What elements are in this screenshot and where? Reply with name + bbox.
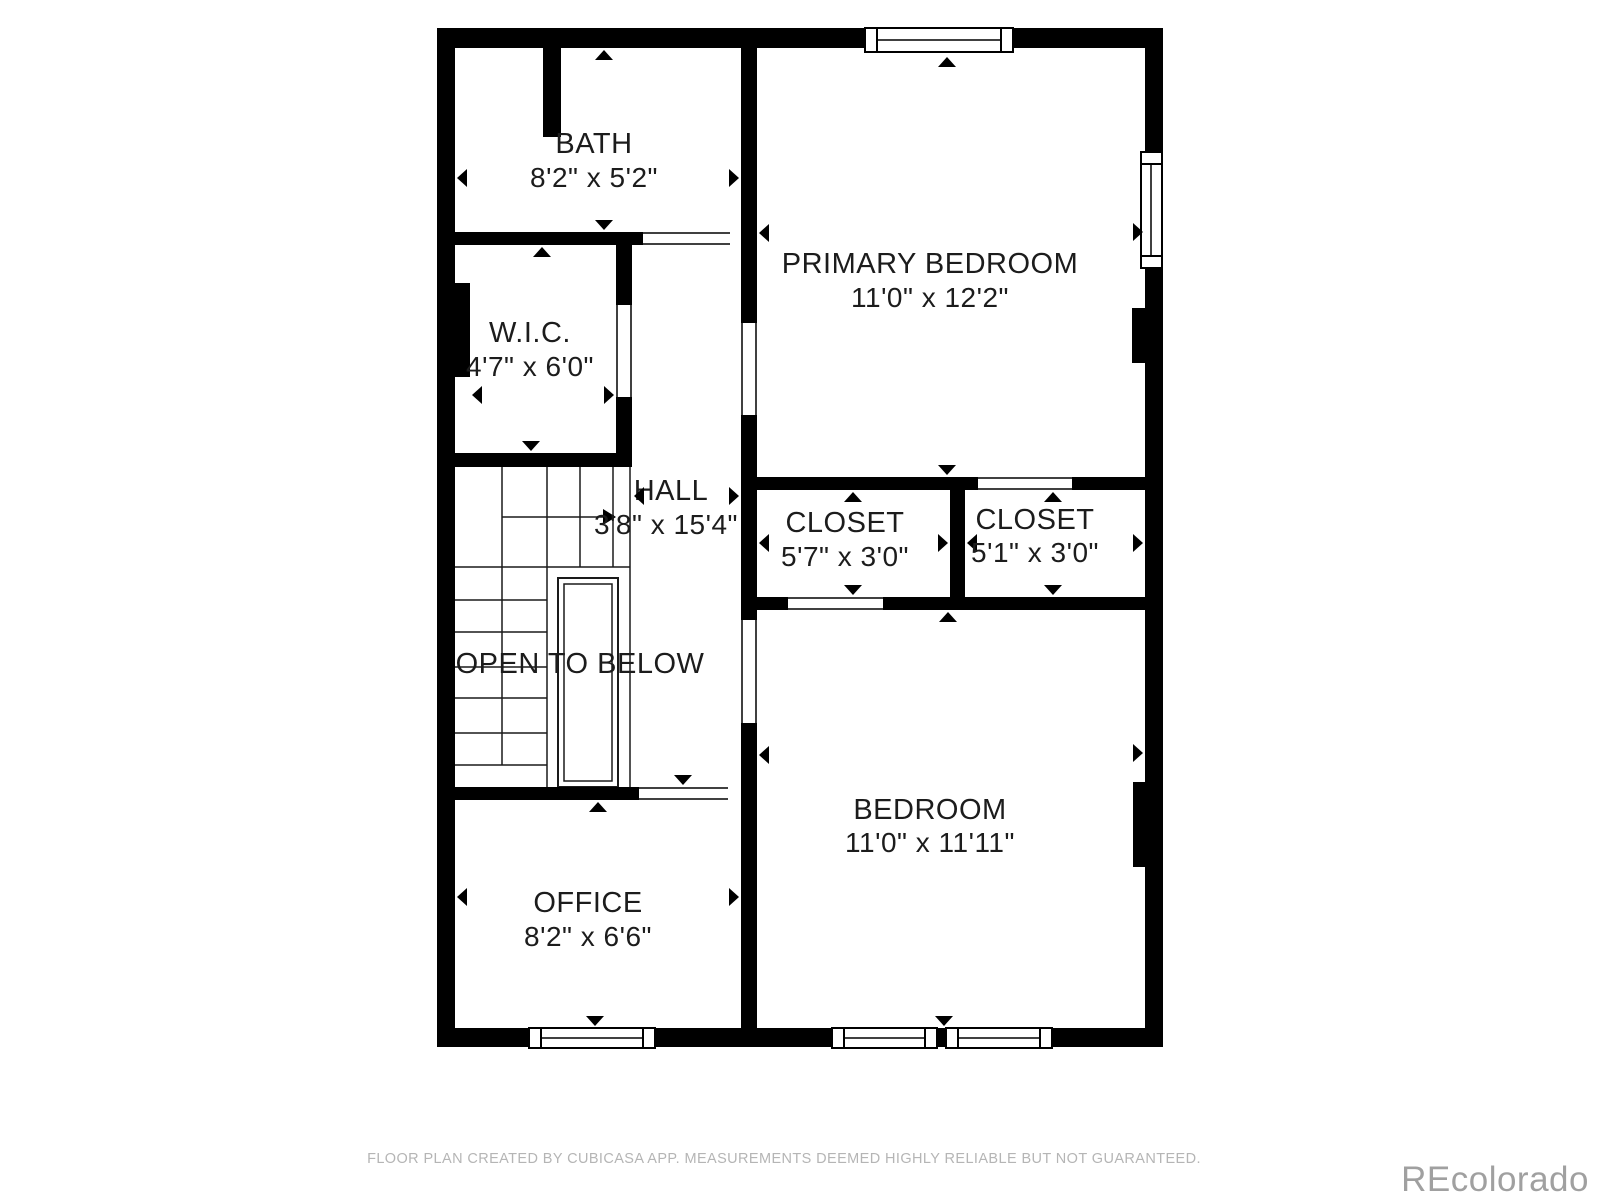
window-top — [865, 28, 1013, 52]
room-label-bedroom: BEDROOM 11'0" x 11'11" — [845, 794, 1015, 858]
wall-right-block-lower — [1133, 782, 1146, 867]
room-label-closet-left: CLOSET 5'7" x 3'0" — [781, 507, 909, 572]
open-to-below-name: OPEN TO BELOW — [456, 648, 705, 680]
wic-dims: 4'7" x 6'0" — [466, 351, 594, 382]
floor-plan-canvas: HALL 3'8" x 15'4" — [0, 0, 1600, 1200]
stair-void-inner — [564, 584, 612, 781]
wall-bath-bottom — [437, 232, 643, 245]
watermark: REcolorado — [1401, 1160, 1589, 1199]
wall-outer-left — [437, 28, 455, 1047]
office-dims: 8'2" x 6'6" — [524, 921, 652, 952]
floor-plan-page: HALL 3'8" x 15'4" — [0, 0, 1600, 1200]
window-bedroom-left — [832, 1028, 937, 1048]
closet-right-dims: 5'1" x 3'0" — [971, 537, 1099, 568]
wall-hall-bedroom-lower — [741, 723, 757, 1028]
stair-void-outer — [558, 578, 618, 787]
window-bedroom-right — [946, 1028, 1052, 1048]
room-label-bath: BATH 8'2" x 5'2" — [530, 128, 658, 193]
closet-left-dims: 5'7" x 3'0" — [781, 541, 909, 572]
wall-wic-right-upper — [616, 245, 632, 305]
room-label-hall: HALL 3'8" x 15'4" — [594, 475, 738, 540]
wall-closet-top-left — [757, 477, 978, 490]
primary-bedroom-dims: 11'0" x 12'2" — [851, 282, 1009, 313]
room-label-office: OFFICE 8'2" x 6'6" — [524, 887, 652, 952]
room-label-wic: W.I.C. 4'7" x 6'0" — [466, 317, 594, 382]
window-right — [1141, 152, 1162, 268]
bath-name: BATH — [555, 128, 632, 160]
office-name: OFFICE — [533, 887, 642, 919]
room-label-open-to-below: OPEN TO BELOW — [456, 648, 705, 680]
wic-name: W.I.C. — [489, 317, 571, 349]
wall-right-block-upper — [1132, 308, 1146, 363]
closet-left-name: CLOSET — [785, 507, 904, 539]
room-labels: BATH 8'2" x 5'2" W.I.C. 4'7" x 6'0" PRIM… — [456, 128, 1099, 952]
wall-hall-primary-upper — [741, 48, 757, 323]
wall-closet-bottom-right — [883, 597, 1145, 610]
bedroom-dims: 11'0" x 11'11" — [845, 827, 1015, 858]
wall-outer-top — [437, 28, 1163, 48]
primary-bedroom-name: PRIMARY BEDROOM — [782, 248, 1078, 280]
room-label-closet-right: CLOSET 5'1" x 3'0" — [971, 504, 1099, 568]
wall-office-top — [437, 787, 639, 800]
wall-closet-divider — [950, 490, 965, 597]
wall-wic-bottom — [437, 453, 632, 467]
wall-hall-primary-mid — [741, 415, 757, 620]
bedroom-name: BEDROOM — [853, 794, 1006, 826]
wall-closet-top-right — [1072, 477, 1145, 490]
room-label-primary-bedroom: PRIMARY BEDROOM 11'0" x 12'2" — [782, 248, 1078, 313]
wall-bath-stub — [543, 48, 561, 137]
bath-dims: 8'2" x 5'2" — [530, 162, 658, 193]
wall-closet-bottom-left — [757, 597, 788, 610]
hall-dims: 3'8" x 15'4" — [594, 509, 738, 540]
hall-name: HALL — [634, 475, 709, 507]
window-office — [529, 1028, 655, 1048]
footer-disclaimer: FLOOR PLAN CREATED BY CUBICASA APP. MEAS… — [367, 1151, 1201, 1167]
closet-right-name: CLOSET — [975, 504, 1094, 536]
